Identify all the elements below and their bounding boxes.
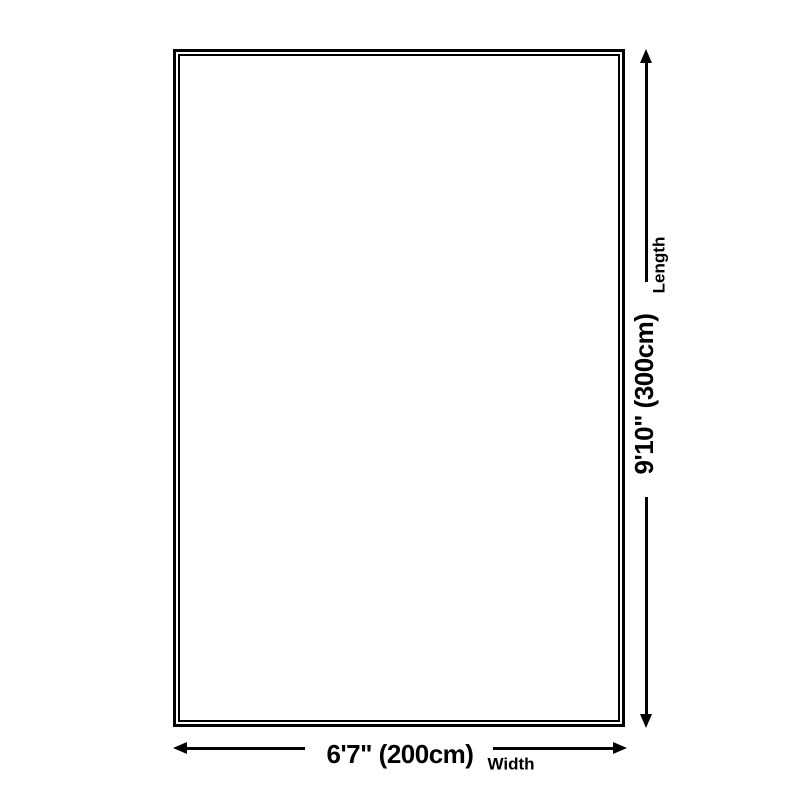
width-value: 6'7" (200cm) bbox=[327, 741, 474, 767]
arrow-down-icon bbox=[640, 714, 652, 728]
length-value: 9'10" (300cm) bbox=[631, 314, 657, 475]
arrow-right-icon bbox=[613, 742, 627, 754]
length-arrow-line-top bbox=[645, 62, 648, 282]
length-label: Length bbox=[651, 237, 668, 294]
product-rectangle-inner-border bbox=[178, 54, 620, 722]
dimension-diagram: Length 9'10" (300cm) 6'7" (200cm) Width bbox=[0, 0, 800, 800]
product-rectangle bbox=[173, 49, 625, 727]
arrow-up-icon bbox=[640, 49, 652, 63]
width-arrow-line-right bbox=[493, 747, 614, 750]
length-arrow-line-bottom bbox=[645, 497, 648, 715]
width-label: Width bbox=[487, 756, 534, 773]
arrow-left-icon bbox=[173, 742, 187, 754]
width-arrow-line-left bbox=[186, 747, 305, 750]
